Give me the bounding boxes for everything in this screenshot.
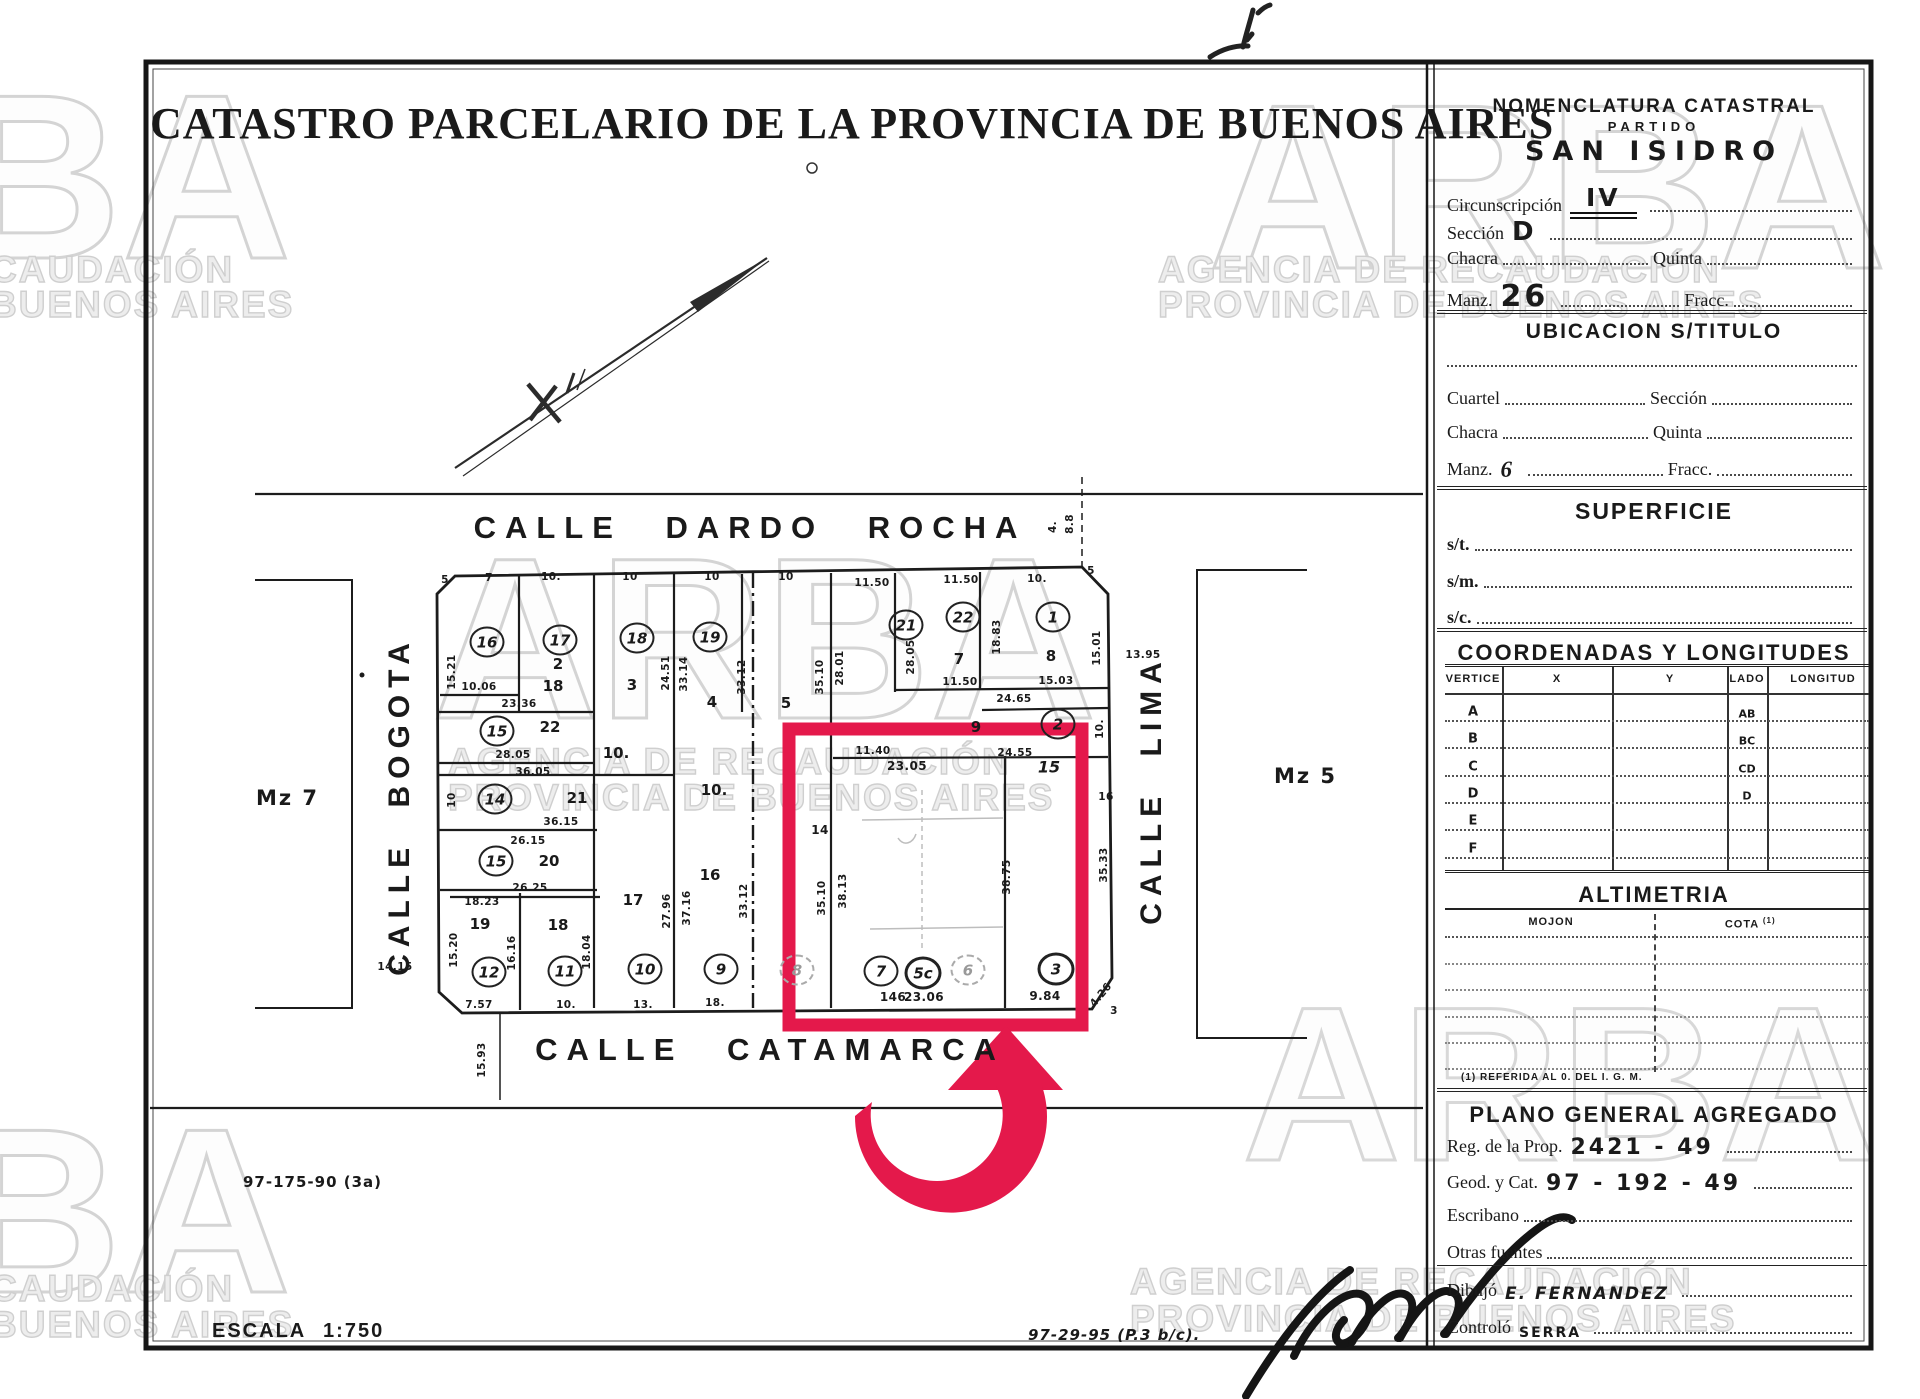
nomenclatura-title: NOMENCLATURA CATASTRAL (1437, 96, 1871, 118)
dotted-line (1475, 548, 1853, 551)
measurement-label: 35.33 (1098, 847, 1110, 882)
superficie-row-label: s/m. (1447, 571, 1479, 592)
measurement-label: 10.06 (461, 681, 496, 693)
dotted-line (1524, 1219, 1852, 1222)
lot-number: 15 (1038, 758, 1060, 777)
measurement-label: 4. (1047, 521, 1059, 533)
measurement-label: 15.01 (1091, 630, 1103, 665)
column-header: LONGITUD (1790, 673, 1855, 685)
quinta-label: Quinta (1653, 422, 1702, 443)
chacra-label: Chacra (1447, 422, 1498, 443)
lot-number: 3 (627, 676, 637, 694)
fraccion-label: Fracc. (1684, 290, 1728, 311)
parcel-number: 6 (951, 955, 986, 986)
altimetry-table: MOJON COTA (1) (1445, 908, 1869, 1077)
coordinates-table: VERTICE X Y LADO LONGITUD A B C D E F AB… (1445, 664, 1869, 873)
parcel-number: 12 (472, 957, 507, 988)
seccion-label: Sección (1650, 388, 1707, 409)
parcel-number: 22 (946, 602, 981, 633)
table-header-divider (1445, 693, 1869, 695)
dotted-line (1445, 829, 1869, 831)
dotted-line (1594, 1331, 1852, 1334)
plano-title: PLANO GENERAL AGREGADO (1437, 1102, 1871, 1128)
vertex-label: E (1469, 814, 1478, 829)
measurement-label: 13.95 (1125, 649, 1160, 661)
measurement-label: 33.14 (678, 656, 690, 691)
measurement-label: 14.15 (377, 961, 412, 973)
table-column-divider (1502, 667, 1504, 870)
escribano-label: Escribano (1447, 1205, 1519, 1226)
measurement-label: 33.12 (738, 883, 750, 918)
controlo-value: SERRA (1519, 1325, 1581, 1341)
cadastral-data-panel: NOMENCLATURA CATASTRAL PARTIDO SAN ISIDR… (1437, 62, 1871, 1348)
measurement-label: 13. (633, 999, 653, 1011)
measurement-label: 3 (1110, 1005, 1118, 1017)
dotted-line (1445, 1042, 1869, 1044)
measurement-label: 18.04 (581, 934, 593, 969)
vertex-label: A (1468, 705, 1478, 720)
measurement-label: 11.50 (943, 574, 978, 586)
cota-footnote-marker: (1) (1763, 916, 1776, 925)
cuartel-label: Cuartel (1447, 388, 1500, 409)
measurement-label: 15.21 (446, 654, 458, 689)
side-label: BC (1739, 735, 1755, 748)
table-column-divider (1727, 667, 1729, 870)
lot-number: 20 (539, 852, 560, 870)
dotted-line (1445, 963, 1869, 965)
dotted-line (1445, 1016, 1869, 1018)
table-column-divider (1767, 667, 1769, 870)
dotted-line (1717, 473, 1852, 476)
measurement-label: 15.93 (476, 1042, 488, 1077)
lot-number: 2 (553, 655, 563, 673)
measurement-label: 37.16 (681, 890, 693, 925)
geod-cat-value: 97 - 192 - 49 (1546, 1171, 1741, 1196)
section-divider (1437, 628, 1867, 632)
measurement-label: 27.96 (661, 893, 673, 928)
measurement-label: 28.01 (834, 650, 846, 685)
partido-label: PARTIDO (1437, 119, 1871, 134)
lot-number: 21 (567, 789, 588, 807)
measurement-label: 8.8 (1064, 514, 1076, 534)
section-divider (1437, 1265, 1867, 1266)
measurement-label: 38.75 (1001, 859, 1013, 894)
measurement-label: 14 (811, 823, 829, 837)
parcel-number: 7 (864, 956, 899, 987)
measurement-label: 24.65 (996, 693, 1031, 705)
measurement-label: 36.05 (515, 766, 550, 778)
measurement-label: 28.05 (495, 749, 530, 761)
lot-number: 17 (623, 891, 644, 909)
lot-number: 10. (701, 781, 728, 799)
parcel-number: 1 (1036, 602, 1071, 633)
parcel-number: 19 (693, 622, 728, 653)
dotted-line (1445, 720, 1869, 722)
reg-prop-value: 2421 - 49 (1570, 1135, 1713, 1160)
measurement-label: 11.40 (855, 745, 890, 757)
measurement-label: 10 (622, 571, 637, 583)
lot-number: 18 (543, 677, 564, 695)
parcel-number: 14 (478, 784, 513, 815)
dotted-line (1754, 1186, 1852, 1189)
measurement-label: 10. (1094, 719, 1106, 739)
lot-number: 18 (548, 916, 569, 934)
superficie-row-label: s/c. (1447, 607, 1472, 628)
measurement-label: 11.50 (854, 577, 889, 589)
measurement-label: 16.16 (506, 935, 518, 970)
side-label: D (1742, 790, 1751, 803)
parcel-number: 8 (780, 955, 815, 986)
parcel-number: 10 (628, 954, 663, 985)
parcel-number: 21 (889, 610, 924, 641)
dotted-line (1445, 802, 1869, 804)
dibujo-label: Dibujó (1447, 1280, 1497, 1301)
column-header: X (1553, 673, 1561, 685)
measurement-label: 15.20 (448, 932, 460, 967)
lot-number: 7 (954, 650, 964, 668)
measurement-label: 9.84 (1029, 989, 1060, 1003)
dotted-line (1682, 1294, 1852, 1297)
parcel-number: 17 (543, 625, 578, 656)
measurement-label: 5 (441, 574, 449, 586)
parcel-number: 2 (1041, 709, 1076, 740)
measurement-label: 26.25 (512, 882, 547, 894)
manzana-value: 26 (1500, 279, 1548, 314)
measurement-label: 28.05 (905, 639, 917, 674)
lot-number: 16 (700, 866, 721, 884)
vertex-label: B (1468, 732, 1478, 747)
measurement-label: 35.10 (814, 659, 826, 694)
manzana-label: Manz. (1447, 290, 1492, 311)
dotted-line (1707, 436, 1852, 439)
table-column-divider (1612, 667, 1614, 870)
superficie-row-label: s/t. (1447, 534, 1470, 555)
reg-prop-label: Reg. de la Prop. (1447, 1136, 1562, 1157)
dotted-line (1727, 1150, 1852, 1153)
dotted-line (1528, 473, 1663, 476)
controlo-label: Controló (1447, 1317, 1511, 1338)
measurement-label: 10. (556, 999, 576, 1011)
parcel-number: 16 (470, 627, 505, 658)
dotted-line (1445, 1068, 1869, 1070)
measurement-label: 16 (1098, 791, 1113, 803)
measurement-label: 23.36 (501, 698, 536, 710)
measurement-label: 10. (1027, 573, 1047, 585)
dotted-line (1734, 304, 1852, 307)
dotted-line (1445, 857, 1869, 859)
parcel-number: 18 (620, 623, 655, 654)
dotted-line (1561, 304, 1679, 307)
lot-number: 8 (1046, 647, 1056, 665)
parcel-number: 11 (548, 956, 583, 987)
otras-fuentes-label: Otras fuentes (1447, 1242, 1542, 1263)
seccion-label: Sección (1447, 223, 1504, 244)
measurement-label: 26.15 (510, 835, 545, 847)
dibujo-value: E. FERNANDEZ (1505, 1284, 1669, 1304)
dotted-line (1445, 989, 1869, 991)
seccion-value: D (1512, 217, 1537, 247)
chacra-label: Chacra (1447, 248, 1498, 269)
parcel-number: 15 (479, 846, 514, 877)
dotted-line (1650, 209, 1852, 212)
dotted-line (1503, 262, 1648, 265)
measurement-label: 15.03 (1038, 675, 1073, 687)
section-divider (1437, 486, 1867, 490)
fraccion-label: Fracc. (1668, 459, 1712, 480)
lot-number: 10. (603, 744, 630, 762)
measurement-label: 24.51 (660, 655, 672, 690)
dotted-line (1505, 402, 1645, 405)
dotted-line (1445, 747, 1869, 749)
vertex-label: C (1468, 760, 1478, 775)
side-label: AB (1739, 708, 1756, 721)
dotted-line (1445, 936, 1869, 938)
lot-number: 19 (470, 915, 491, 933)
lot-number: 5 (781, 694, 791, 712)
measurement-label: 7.57 (465, 999, 493, 1011)
measurement-label: 5 (1087, 565, 1095, 577)
manzana-value: 6 (1500, 457, 1515, 483)
parcel-number: 3 (1038, 953, 1075, 986)
dotted-line (1550, 237, 1852, 240)
measurement-label: 35.10 (816, 880, 828, 915)
lot-number: 4 (707, 693, 717, 711)
ubicacion-title: UBICACION S/TITULO (1437, 320, 1871, 344)
partido-value: SAN ISIDRO (1437, 136, 1871, 167)
dotted-line (1477, 621, 1853, 624)
measurement-label: 7 (485, 572, 493, 584)
column-header: COTA (1) (1725, 916, 1776, 931)
measurement-label: 38.13 (837, 873, 849, 908)
quinta-label: Quinta (1653, 248, 1702, 269)
coordenadas-title: COORDENADAS Y LONGITUDES (1437, 640, 1871, 666)
measurement-label: 10 (778, 571, 793, 583)
measurement-label: 11.50 (942, 676, 977, 688)
dotted-line (1503, 436, 1648, 439)
dotted-line (1484, 585, 1853, 588)
measurement-label: 18. (705, 997, 725, 1009)
altimetria-title: ALTIMETRIA (1437, 882, 1871, 908)
lot-number: 9 (971, 718, 981, 736)
dotted-line (1447, 365, 1857, 367)
measurement-label: 146 (880, 990, 906, 1004)
measurement-label: 10 (704, 571, 719, 583)
column-header: LADO (1729, 673, 1764, 685)
measurement-label: 36.15 (543, 816, 578, 828)
manzana-label: Manz. (1447, 459, 1492, 480)
measurement-label: 24.55 (997, 747, 1032, 759)
measurement-label: 18.83 (991, 619, 1003, 654)
dotted-line (1445, 775, 1869, 777)
measurement-label: 23.06 (904, 990, 944, 1004)
circunscripcion-label: Circunscripción (1447, 195, 1562, 216)
side-label: CD (1738, 763, 1755, 776)
section-divider (1437, 1088, 1867, 1092)
geod-cat-label: Geod. y Cat. (1447, 1172, 1538, 1193)
dotted-line (1707, 262, 1852, 265)
dotted-line (1547, 1256, 1852, 1259)
column-header: VERTICE (1446, 673, 1501, 685)
measurement-label: 10. (541, 571, 561, 583)
lot-number: 22 (540, 718, 561, 736)
vertex-label: F (1469, 842, 1478, 857)
column-header: Y (1666, 673, 1674, 685)
column-header: MOJON (1528, 916, 1573, 928)
measurement-label: 23.05 (887, 759, 927, 773)
vertex-label: D (1468, 787, 1479, 802)
cota-label: COTA (1725, 919, 1759, 931)
measurement-label: 18.23 (464, 896, 499, 908)
measurement-label: 33.12 (736, 659, 748, 694)
parcel-number: 5c (905, 957, 942, 990)
section-divider (1437, 310, 1867, 314)
measurement-label: 10 (446, 792, 458, 807)
altimetria-footnote: (1) REFERIDA AL 0. DEL I. G. M. (1461, 1072, 1643, 1083)
dotted-line (1712, 402, 1852, 405)
parcel-number: 9 (704, 954, 739, 985)
parcel-number: 15 (480, 716, 515, 747)
superficie-title: SUPERFICIE (1437, 498, 1871, 525)
